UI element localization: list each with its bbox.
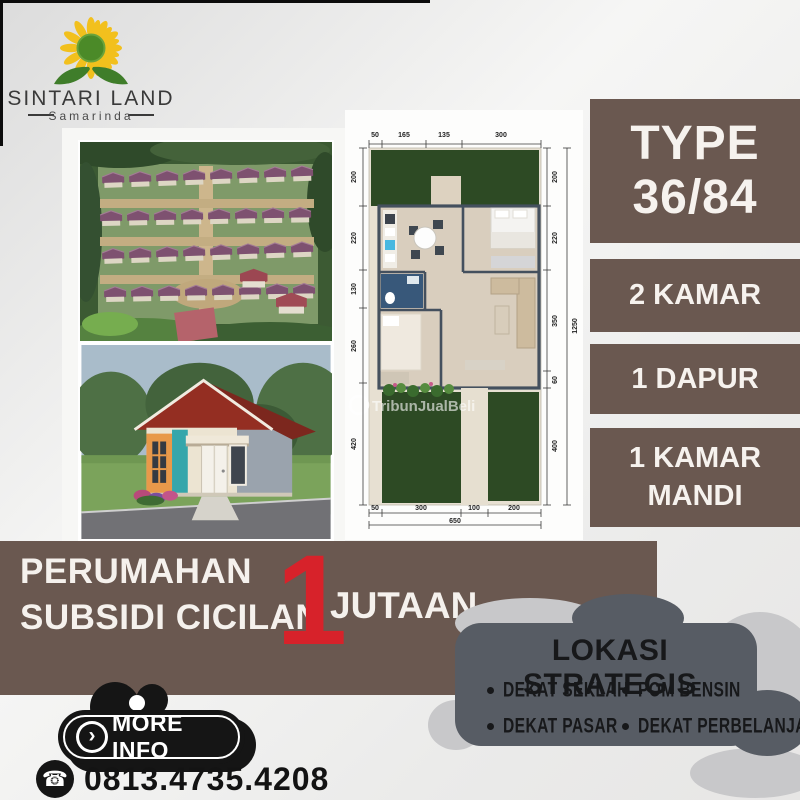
- brand-city: Samarinda: [48, 109, 133, 123]
- svg-text:350: 350: [552, 315, 559, 327]
- cloud-shape: [690, 748, 800, 798]
- button-cloud-dot: [129, 695, 145, 711]
- brand-logo: SINTARI LAND Samarinda: [6, 6, 186, 128]
- svg-text:260: 260: [351, 340, 358, 352]
- list-item: POM BENSIN: [622, 672, 800, 708]
- svg-text:200: 200: [552, 171, 559, 183]
- bullet-icon: [487, 687, 494, 694]
- location-list-right: POM BENSIN DEKAT PERBELANJAAN: [622, 672, 800, 744]
- svg-text:50: 50: [371, 132, 379, 139]
- banner-line1: PERUMAHAN: [20, 552, 252, 592]
- floor-plan: TribunJualBeli 50 165 135 300: [345, 110, 583, 540]
- house-render-photo: [78, 343, 334, 541]
- arrow-icon: ›: [79, 724, 105, 750]
- brand-name: SINTARI LAND: [7, 87, 174, 110]
- bullet-icon: [622, 723, 629, 730]
- bullet-icon: [487, 723, 494, 730]
- svg-text:420: 420: [351, 438, 358, 450]
- feature-card-dapur: 1 DAPUR: [590, 344, 800, 414]
- svg-text:400: 400: [552, 440, 559, 452]
- svg-text:TribunJualBeli: TribunJualBeli: [372, 398, 475, 415]
- phone-contact[interactable]: ☎ 0813.4735.4208: [36, 759, 329, 799]
- type-value: 36/84: [632, 171, 757, 225]
- aerial-photo: [78, 140, 334, 343]
- svg-text:200: 200: [508, 505, 520, 512]
- poster: SINTARI LAND Samarinda: [0, 0, 800, 800]
- svg-text:50: 50: [371, 505, 379, 512]
- phone-number: 0813.4735.4208: [84, 761, 329, 798]
- svg-text:135: 135: [438, 132, 450, 139]
- svg-text:100: 100: [468, 505, 480, 512]
- feature-card-kamar-mandi: 1 KAMAR MANDI: [590, 428, 800, 527]
- svg-text:650: 650: [449, 518, 461, 525]
- svg-text:60: 60: [552, 376, 559, 384]
- more-info-label: MORE INFO: [112, 710, 238, 764]
- sunflower-icon: [54, 17, 128, 84]
- feature-card-kamar: 2 KAMAR: [590, 259, 800, 332]
- svg-text:200: 200: [351, 171, 358, 183]
- top-edge-line: [0, 0, 430, 3]
- svg-text:220: 220: [552, 232, 559, 244]
- svg-text:300: 300: [415, 505, 427, 512]
- svg-text:1250: 1250: [572, 318, 579, 334]
- left-edge-line: [0, 0, 3, 146]
- phone-icon: ☎: [36, 760, 74, 798]
- type-card: TYPE 36/84: [590, 99, 800, 243]
- svg-text:165: 165: [398, 132, 410, 139]
- type-label: TYPE: [630, 117, 759, 171]
- svg-text:220: 220: [351, 232, 358, 244]
- bullet-icon: [622, 687, 629, 694]
- svg-text:300: 300: [495, 132, 507, 139]
- list-item: DEKAT PERBELANJAAN: [622, 708, 800, 744]
- svg-text:130: 130: [351, 283, 358, 295]
